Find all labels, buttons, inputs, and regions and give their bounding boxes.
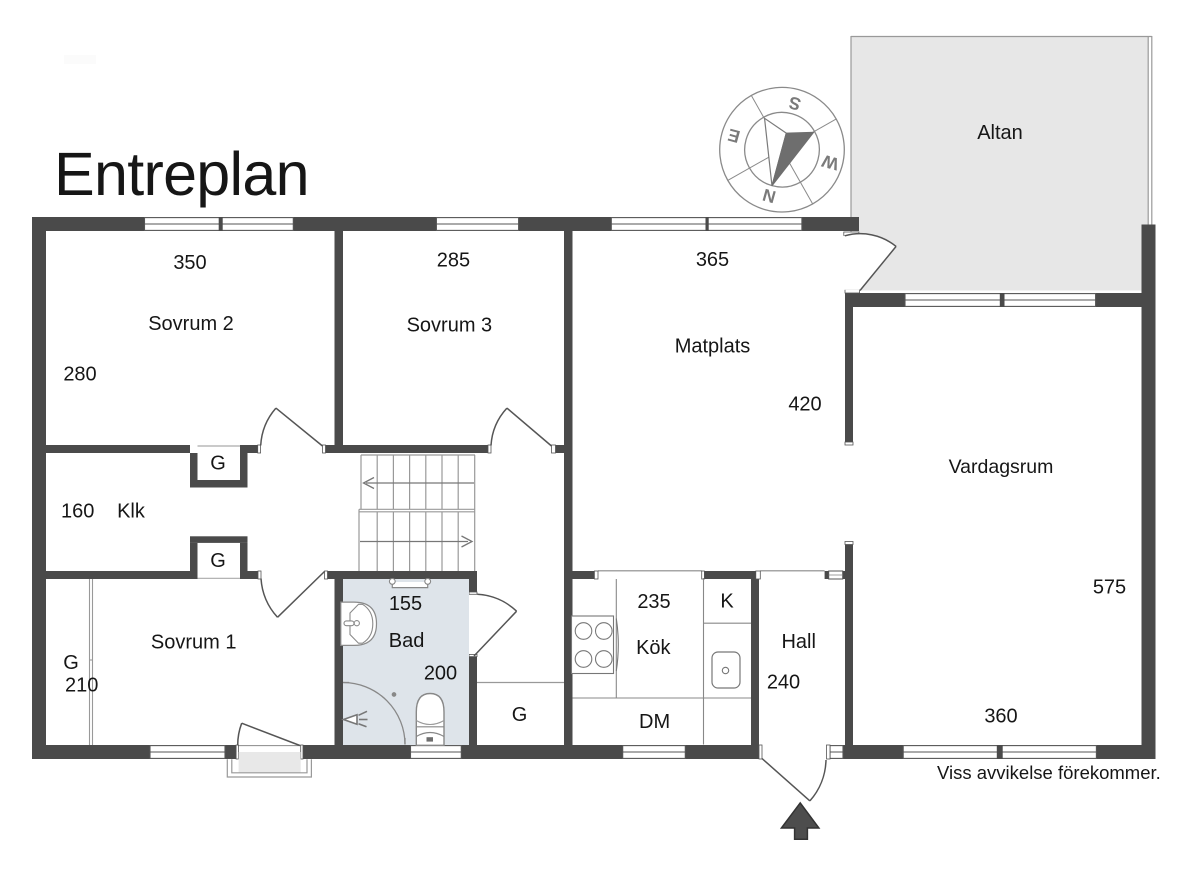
- svg-text:365: 365: [696, 249, 729, 271]
- svg-text:Altan: Altan: [977, 122, 1023, 144]
- svg-text:Matplats: Matplats: [675, 336, 751, 358]
- svg-text:Hall: Hall: [781, 631, 815, 653]
- svg-text:155: 155: [389, 593, 422, 615]
- svg-text:Bad: Bad: [389, 630, 425, 652]
- svg-text:420: 420: [788, 394, 821, 416]
- svg-text:Klk: Klk: [117, 501, 146, 523]
- svg-text:240: 240: [767, 672, 800, 694]
- svg-text:575: 575: [1093, 577, 1126, 599]
- svg-text:G: G: [210, 453, 226, 475]
- svg-text:285: 285: [437, 249, 470, 271]
- svg-text:K: K: [720, 591, 734, 613]
- svg-text:Viss avvikelse förekommer.: Viss avvikelse förekommer.: [937, 762, 1161, 783]
- svg-text:360: 360: [984, 706, 1017, 728]
- svg-text:210: 210: [65, 675, 98, 697]
- svg-text:Sovrum 1: Sovrum 1: [151, 632, 237, 654]
- svg-text:160: 160: [61, 501, 94, 523]
- svg-text:200: 200: [424, 662, 457, 684]
- svg-text:235: 235: [637, 591, 670, 613]
- svg-text:Vardagsrum: Vardagsrum: [949, 456, 1054, 478]
- svg-text:Kök: Kök: [636, 637, 671, 659]
- svg-text:G: G: [512, 704, 528, 726]
- svg-text:280: 280: [63, 364, 96, 386]
- svg-text:G: G: [63, 652, 79, 674]
- svg-text:Entreplan: Entreplan: [54, 140, 309, 208]
- svg-text:Sovrum 2: Sovrum 2: [148, 313, 234, 335]
- svg-text:G: G: [210, 550, 226, 572]
- svg-text:Sovrum 3: Sovrum 3: [407, 314, 493, 336]
- svg-text:350: 350: [173, 252, 206, 274]
- svg-text:DM: DM: [639, 711, 670, 733]
